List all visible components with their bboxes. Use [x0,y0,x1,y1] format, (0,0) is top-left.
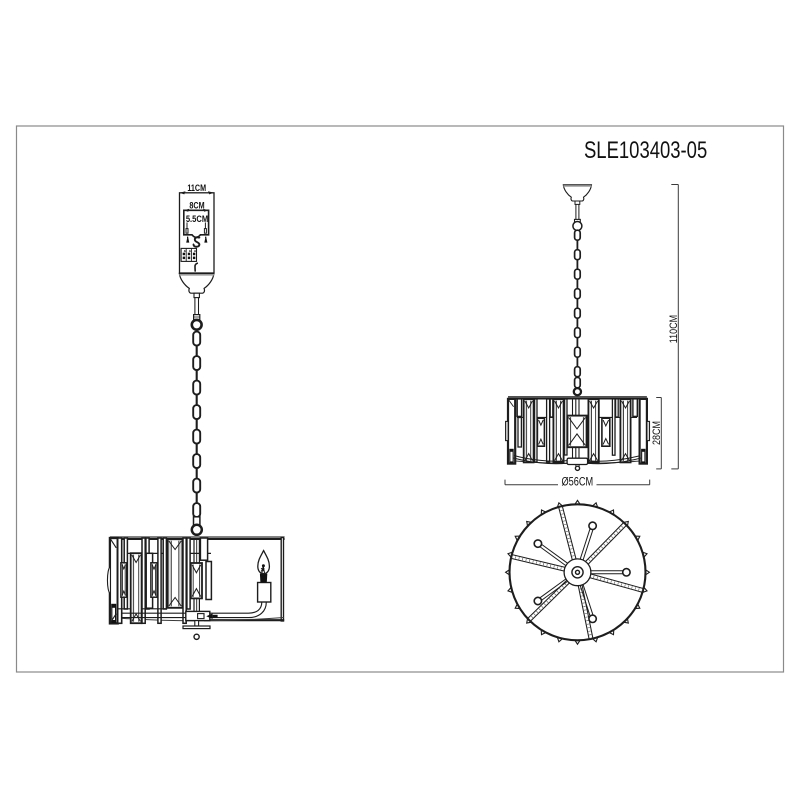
svg-text:28CM: 28CM [651,421,663,445]
svg-text:5.5CM: 5.5CM [186,213,208,224]
svg-text:8CM: 8CM [189,201,204,211]
svg-text:Ø56CM: Ø56CM [561,477,593,489]
svg-text:SLE103403-05: SLE103403-05 [584,137,707,164]
svg-text:110CM: 110CM [668,315,680,343]
svg-text:11CM: 11CM [187,183,206,193]
